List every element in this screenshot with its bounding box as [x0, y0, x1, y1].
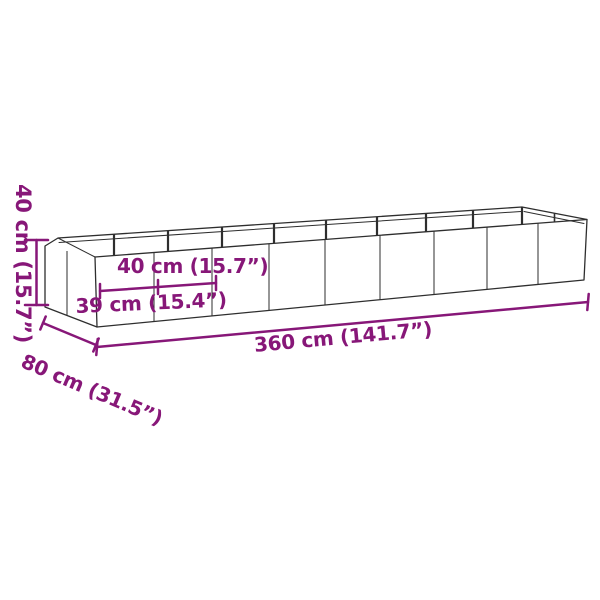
height-dimension-label: 40 cm (15.7”)	[11, 184, 35, 343]
product-dimension-diagram: 40 cm (15.7”) 40 cm (15.7”) 39 cm (15.4”…	[0, 0, 600, 600]
panel-width-dimension-label: 40 cm (15.7”)	[117, 254, 268, 278]
